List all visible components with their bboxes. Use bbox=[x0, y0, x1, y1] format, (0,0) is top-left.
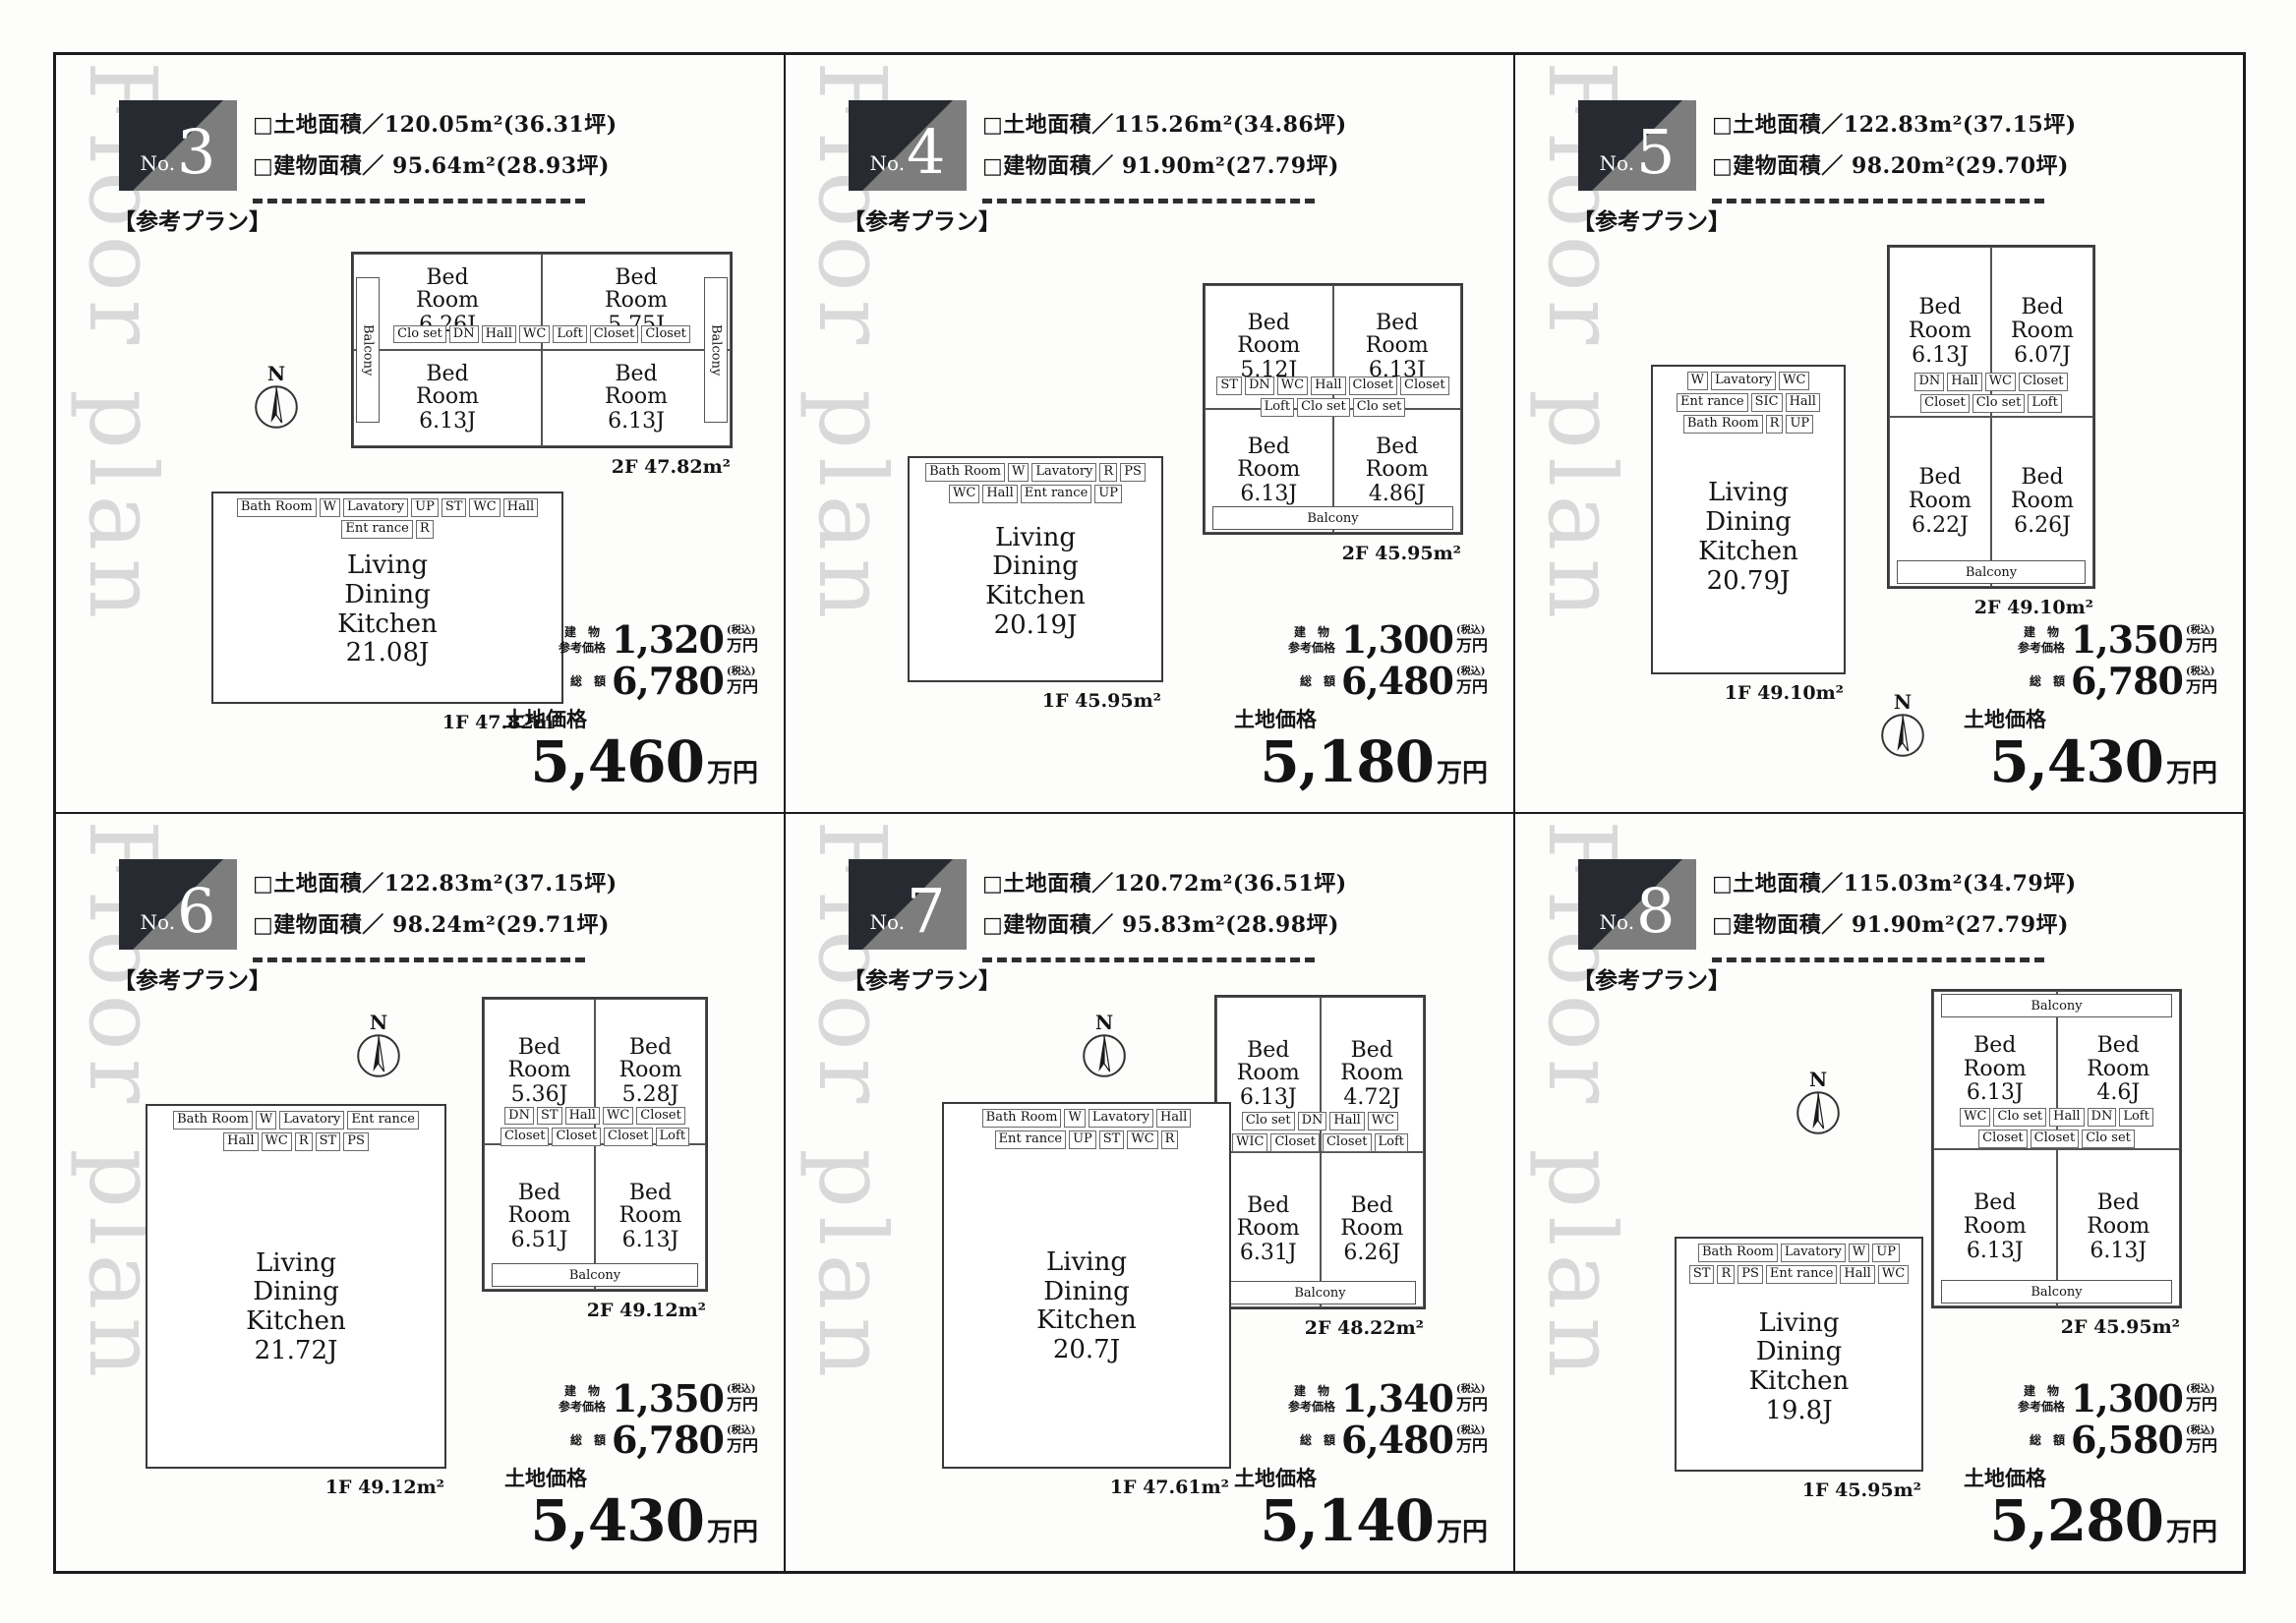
ldk-room: Living Dining Kitchen20.79J bbox=[1645, 479, 1852, 597]
utility-label: Ent rance bbox=[1677, 393, 1748, 412]
utility-label: Loft bbox=[2119, 1108, 2153, 1127]
land-price-row: 5,430 万円 bbox=[493, 1492, 758, 1549]
room-size: 6.22J bbox=[1912, 513, 1969, 538]
land-price-unit: 万円 bbox=[707, 753, 758, 789]
building-price-label: 建 物 参考価格 bbox=[559, 1383, 606, 1415]
utility-label: ST bbox=[1099, 1130, 1125, 1149]
room-size: 4.6J bbox=[2096, 1080, 2140, 1105]
land-price-value: 5,430 bbox=[530, 1492, 704, 1549]
utility-label: Hall bbox=[1947, 373, 1981, 391]
room-name: Bed Room bbox=[1900, 466, 1980, 513]
utility-label: R bbox=[1099, 463, 1117, 482]
utility-label: UP bbox=[1872, 1244, 1900, 1262]
building-price-label: 建 物 参考価格 bbox=[2018, 624, 2065, 656]
dashed-divider bbox=[982, 199, 1315, 203]
utility-label: WC bbox=[1960, 1108, 1990, 1127]
balcony: Balcony bbox=[1224, 1281, 1416, 1304]
land-price-value: 5,140 bbox=[1260, 1492, 1434, 1549]
room-name: Bed Room bbox=[1331, 1039, 1412, 1086]
utility-label: Bath Room bbox=[1683, 415, 1763, 434]
utility-label: Clo set bbox=[2082, 1130, 2135, 1148]
land-price-value: 5,180 bbox=[1260, 733, 1434, 790]
room: Bed Room6.13J bbox=[542, 350, 731, 446]
room-name: Bed Room bbox=[1331, 1194, 1412, 1242]
lot-panel-7: Floor plan No. 7 □土地面積／120.72m²(36.51坪) … bbox=[785, 813, 1514, 1572]
room-size: 6.07J bbox=[2014, 343, 2071, 368]
floor-area-label: 1F 49.12m² bbox=[325, 1477, 444, 1498]
utility-label: PS bbox=[343, 1132, 369, 1151]
building-price-value: 1,340 bbox=[1341, 1380, 1453, 1418]
room-name: Bed Room bbox=[500, 1036, 580, 1083]
utility-labels: Bath RoomLavatoryWUPSTRPSEnt ranceHallWC bbox=[1686, 1244, 1912, 1284]
total-price-value: 6,480 bbox=[1341, 1421, 1453, 1459]
room-size: 6.13J bbox=[622, 1228, 679, 1252]
balcony: Balcony bbox=[492, 1263, 698, 1287]
price-block: 建 物 参考価格 1,300 (税込) 万円 総 額 6,580 (税込) 万円… bbox=[1952, 1380, 2217, 1549]
total-price-suffix: (税込) 万円 bbox=[2186, 1425, 2217, 1455]
utility-labels: STDNWCHallClosetClosetLoftClo setClo set bbox=[1214, 377, 1450, 417]
utility-label: Clo set bbox=[1972, 394, 2026, 413]
badge-no-prefix: No. bbox=[141, 912, 176, 932]
land-area-text: □土地面積／122.83m²(37.15坪) bbox=[253, 863, 618, 904]
utility-label: Bath Room bbox=[925, 463, 1005, 482]
floor-area-label: 1F 45.95m² bbox=[1802, 1479, 1921, 1501]
utility-label: R bbox=[1717, 1265, 1735, 1284]
balcony: Balcony bbox=[1941, 1280, 2172, 1304]
utility-label: WC bbox=[519, 325, 550, 344]
land-area-text: □土地面積／115.26m²(34.86坪) bbox=[982, 104, 1347, 145]
area-info: □土地面積／122.83m²(37.15坪) □建物面積／ 98.20m²(29… bbox=[1712, 104, 2077, 187]
utility-label: ST bbox=[1216, 377, 1242, 395]
utility-label: Bath Room bbox=[237, 498, 317, 517]
utility-label: Lavatory bbox=[1089, 1109, 1153, 1128]
room-name: Bed Room bbox=[596, 266, 677, 314]
building-price-row: 建 物 参考価格 1,300 (税込) 万円 bbox=[1952, 1380, 2217, 1418]
utility-label: DN bbox=[2088, 1108, 2117, 1127]
building-price-value: 1,350 bbox=[612, 1380, 724, 1418]
lot-number-badge: No. 5 bbox=[1578, 100, 1696, 191]
floor-area-label: 2F 48.22m² bbox=[1305, 1317, 1424, 1339]
utility-label: Hall bbox=[503, 498, 538, 517]
room: Bed Room6.13J bbox=[353, 350, 542, 446]
utility-label: Lavatory bbox=[279, 1111, 344, 1130]
building-price-suffix: (税込) 万円 bbox=[1456, 625, 1488, 655]
utility-label: Closet bbox=[1400, 377, 1449, 395]
room-name: Bed Room bbox=[611, 1182, 691, 1229]
total-price-row: 総 額 6,780 (税込) 万円 bbox=[1952, 663, 2217, 700]
utility-label: W bbox=[1687, 372, 1708, 390]
ldk-room: Living Dining Kitchen21.08J bbox=[284, 551, 491, 669]
floor-plan-1f: Living Dining Kitchen21.72JBath RoomWLav… bbox=[146, 1104, 446, 1469]
room-name: Bed Room bbox=[1228, 312, 1309, 359]
room-size: 20.7J bbox=[983, 1337, 1190, 1366]
room-size: 6.51J bbox=[511, 1228, 568, 1252]
floor-plan-sheet: Floor plan No. 3 □土地面積／120.05m²(36.31坪) … bbox=[0, 0, 2296, 1623]
total-price-row: 総 額 6,480 (税込) 万円 bbox=[1222, 1421, 1488, 1459]
utility-labels: Clo setDNHallWCWICClosetClosetLoft bbox=[1224, 1112, 1415, 1152]
reference-plan-label: 【参考プラン】 bbox=[1572, 203, 1731, 236]
building-price-label: 建 物 参考価格 bbox=[1288, 1383, 1335, 1415]
utility-label: Closet bbox=[2019, 373, 2068, 391]
price-unit: 万円 bbox=[727, 1396, 758, 1414]
room-name: Bed Room bbox=[2078, 1191, 2158, 1239]
utility-label: Closet bbox=[2031, 1130, 2080, 1148]
compass-n-label: N bbox=[1875, 692, 1930, 712]
total-price-label: 総 額 bbox=[2030, 673, 2065, 689]
floor-area-label: 2F 49.12m² bbox=[587, 1300, 706, 1321]
building-price-label: 建 物 参考価格 bbox=[559, 624, 606, 656]
land-price-unit: 万円 bbox=[707, 1512, 758, 1548]
balcony: Balcony bbox=[1941, 994, 2172, 1017]
price-block: 建 物 参考価格 1,300 (税込) 万円 総 額 6,480 (税込) 万円… bbox=[1222, 621, 1488, 790]
building-price-suffix: (税込) 万円 bbox=[2186, 1384, 2217, 1414]
compass-n-label: N bbox=[351, 1013, 406, 1032]
room-size: 6.13J bbox=[2090, 1239, 2147, 1263]
price-unit: 万円 bbox=[2186, 1396, 2217, 1414]
total-price-label: 総 額 bbox=[570, 673, 606, 689]
utility-label: Lavatory bbox=[1711, 372, 1776, 390]
badge-number: 4 bbox=[907, 127, 945, 179]
badge-number: 8 bbox=[1636, 886, 1675, 938]
building-price-row: 建 物 参考価格 1,340 (税込) 万円 bbox=[1222, 1380, 1488, 1418]
utility-label: Loft bbox=[656, 1128, 690, 1146]
compass-n-label: N bbox=[249, 364, 304, 383]
utility-label: Clo set bbox=[1993, 1108, 2046, 1127]
utility-label: Hall bbox=[1156, 1109, 1191, 1128]
floor-plan-2f: Bed Room6.26JBed Room5.75JBed Room6.13JB… bbox=[351, 252, 733, 448]
utility-label: Closet bbox=[1270, 1133, 1320, 1152]
lot-panel-5: Floor plan No. 5 □土地面積／122.83m²(37.15坪) … bbox=[1514, 54, 2244, 813]
land-price-unit: 万円 bbox=[1437, 1512, 1488, 1548]
utility-label: WC bbox=[469, 498, 500, 517]
utility-label: DN bbox=[504, 1107, 534, 1126]
land-price-value: 5,430 bbox=[1989, 733, 2163, 790]
total-price-suffix: (税込) 万円 bbox=[2186, 667, 2217, 696]
floor-plan-box: Living Dining Kitchen20.7JBath RoomWLava… bbox=[942, 1102, 1231, 1469]
utility-label: UP bbox=[1069, 1130, 1096, 1149]
room-name: Living Dining Kitchen bbox=[314, 551, 461, 640]
utility-label: ST bbox=[316, 1132, 341, 1151]
room-size: 6.13J bbox=[1967, 1239, 2024, 1263]
floor-plan-2f: Bed Room6.13JBed Room4.6JBed Room6.13JBe… bbox=[1931, 989, 2182, 1308]
utility-label: Hall bbox=[1329, 1112, 1364, 1130]
room-size: 4.86J bbox=[1369, 482, 1426, 506]
room-size: 6.13J bbox=[1240, 1085, 1297, 1110]
land-price-row: 5,140 万円 bbox=[1222, 1492, 1488, 1549]
price-block: 建 物 参考価格 1,320 (税込) 万円 総 額 6,780 (税込) 万円… bbox=[493, 621, 758, 790]
floor-plan-box: Living Dining Kitchen20.19JBath RoomWLav… bbox=[908, 456, 1163, 682]
utility-labels: WLavatoryWCEnt ranceSICHallBath RoomRUP bbox=[1661, 372, 1837, 434]
lot-number-badge: No. 3 bbox=[119, 100, 237, 191]
reference-plan-label: 【参考プラン】 bbox=[843, 203, 1001, 236]
land-price-unit: 万円 bbox=[2166, 753, 2217, 789]
floor-plan-2f: Bed Room5.36JBed Room5.28JBed Room6.51JB… bbox=[482, 997, 708, 1292]
badge-no-prefix: No. bbox=[1600, 912, 1635, 932]
room-size: 6.13J bbox=[608, 409, 665, 434]
dashed-divider bbox=[1712, 957, 2044, 962]
lot-panel-3: Floor plan No. 3 □土地面積／120.05m²(36.31坪) … bbox=[55, 54, 785, 813]
land-price-value: 5,280 bbox=[1989, 1492, 2163, 1549]
dashed-divider bbox=[253, 199, 585, 203]
lot-panel-8: Floor plan No. 8 □土地面積／115.03m²(34.79坪) … bbox=[1514, 813, 2244, 1572]
compass-needle-icon bbox=[253, 383, 300, 431]
building-price-suffix: (税込) 万円 bbox=[1456, 1384, 1488, 1414]
balcony: Balcony bbox=[704, 277, 728, 423]
building-price-suffix: (税込) 万円 bbox=[727, 625, 758, 655]
utility-label: WC bbox=[1878, 1265, 1909, 1284]
floor-area-label: 2F 45.95m² bbox=[1342, 543, 1461, 564]
area-info: □土地面積／115.26m²(34.86坪) □建物面積／ 91.90m²(27… bbox=[982, 104, 1347, 187]
badge-number: 6 bbox=[177, 886, 215, 938]
floor-plan-box: Living Dining Kitchen20.79JWLavatoryWCEn… bbox=[1651, 365, 1846, 674]
room-name: Bed Room bbox=[500, 1182, 580, 1229]
utility-label: R bbox=[295, 1132, 313, 1151]
utility-label: W bbox=[256, 1111, 276, 1130]
price-unit: 万円 bbox=[727, 1437, 758, 1455]
dashed-divider bbox=[1712, 199, 2044, 203]
balcony-label: Balcony bbox=[1307, 511, 1358, 526]
utility-label: W bbox=[320, 498, 340, 517]
price-block: 建 物 参考価格 1,340 (税込) 万円 総 額 6,480 (税込) 万円… bbox=[1222, 1380, 1488, 1549]
compass-needle-icon bbox=[1795, 1089, 1842, 1136]
floor-area-label: 2F 45.95m² bbox=[2061, 1316, 2180, 1338]
reference-plan-label: 【参考プラン】 bbox=[113, 203, 271, 236]
compass-n-label: N bbox=[1077, 1013, 1132, 1032]
balcony-label: Balcony bbox=[1966, 565, 2017, 580]
utility-labels: WCClo setHallDNLoftClosetClosetClo set bbox=[1943, 1108, 2170, 1148]
room-name: Bed Room bbox=[1357, 312, 1438, 359]
utility-label: Lavatory bbox=[1031, 463, 1096, 482]
utility-label: Clo set bbox=[1242, 1112, 1295, 1130]
utility-label: ST bbox=[1689, 1265, 1715, 1284]
land-area-text: □土地面積／120.05m²(36.31坪) bbox=[253, 104, 618, 145]
floor-plan-2f: Bed Room6.13JBed Room6.07JBed Room6.22JB… bbox=[1887, 245, 2095, 589]
utility-label: Closet bbox=[1920, 394, 1970, 413]
room-size: 6.26J bbox=[1343, 1241, 1400, 1265]
building-price-value: 1,350 bbox=[2071, 621, 2183, 659]
balcony-label: Balcony bbox=[2031, 1285, 2082, 1300]
utility-label: Closet bbox=[1978, 1130, 2028, 1148]
balcony: Balcony bbox=[1212, 506, 1453, 530]
badge-no-prefix: No. bbox=[870, 912, 906, 932]
room-size: 6.13J bbox=[1912, 343, 1969, 368]
room-name: Bed Room bbox=[1955, 1191, 2035, 1239]
building-price-value: 1,300 bbox=[2071, 1380, 2183, 1418]
floor-area-label: 2F 47.82m² bbox=[612, 456, 731, 478]
room-name: Bed Room bbox=[1955, 1034, 2035, 1081]
panel-grid: Floor plan No. 3 □土地面積／120.05m²(36.31坪) … bbox=[53, 52, 2246, 1574]
land-price-row: 5,430 万円 bbox=[1952, 733, 2217, 790]
room-size: 6.13J bbox=[1967, 1080, 2024, 1105]
utility-labels: Bath RoomWLavatoryHallEnt ranceUPSTWCR bbox=[956, 1109, 1218, 1149]
room-name: Bed Room bbox=[611, 1036, 691, 1083]
room-size: 4.72J bbox=[1343, 1085, 1400, 1110]
total-price-label: 総 額 bbox=[1300, 1432, 1335, 1448]
floor-plan-1f: Living Dining Kitchen20.19JBath RoomWLav… bbox=[908, 456, 1163, 682]
room-size: 19.8J bbox=[1696, 1397, 1903, 1426]
utility-label: Ent rance bbox=[341, 520, 413, 539]
utility-label: Hall bbox=[1311, 377, 1345, 395]
room-size: 5.36J bbox=[511, 1082, 568, 1107]
lot-panel-6: Floor plan No. 6 □土地面積／122.83m²(37.15坪) … bbox=[55, 813, 785, 1572]
room-name: Bed Room bbox=[1357, 435, 1438, 483]
room-size: 6.31J bbox=[1240, 1241, 1297, 1265]
floor-area-label: 1F 45.95m² bbox=[1042, 690, 1161, 712]
building-price-suffix: (税込) 万円 bbox=[2186, 625, 2217, 655]
building-area-text: □建物面積／ 95.83m²(28.98坪) bbox=[982, 904, 1347, 946]
price-unit: 万円 bbox=[1456, 1396, 1488, 1414]
floor-plan-1f: Living Dining Kitchen19.8JBath RoomLavat… bbox=[1675, 1237, 1923, 1472]
utility-label: Clo set bbox=[393, 325, 446, 344]
utility-label: Loft bbox=[1375, 1133, 1409, 1152]
utility-labels: Bath RoomWLavatoryRPSWCHallEnt ranceUP bbox=[919, 463, 1151, 503]
room-name: Bed Room bbox=[1228, 1194, 1309, 1242]
land-price-row: 5,280 万円 bbox=[1952, 1492, 2217, 1549]
utility-label: WC bbox=[262, 1132, 292, 1151]
ldk-room: Living Dining Kitchen20.7J bbox=[983, 1248, 1190, 1366]
building-price-row: 建 物 参考価格 1,320 (税込) 万円 bbox=[493, 621, 758, 659]
compass-n-label: N bbox=[1791, 1070, 1846, 1089]
balcony-label: Balcony bbox=[2031, 999, 2082, 1014]
total-price-value: 6,780 bbox=[2071, 663, 2183, 700]
room-name: Bed Room bbox=[596, 363, 677, 410]
room-name: Bed Room bbox=[2002, 296, 2083, 343]
utility-label: R bbox=[1766, 415, 1784, 434]
total-price-value: 6,780 bbox=[612, 1421, 724, 1459]
total-price-label: 総 額 bbox=[2030, 1432, 2065, 1448]
utility-label: Closet bbox=[604, 1128, 653, 1146]
utility-label: R bbox=[416, 520, 434, 539]
balcony: Balcony bbox=[1897, 560, 2086, 584]
price-unit: 万円 bbox=[1456, 637, 1488, 655]
ldk-room: Living Dining Kitchen20.19J bbox=[932, 524, 1139, 642]
room-name: Living Dining Kitchen bbox=[1726, 1309, 1873, 1398]
compass-icon: N bbox=[1875, 692, 1930, 763]
floor-plan-box: Bed Room5.36JBed Room5.28JBed Room6.51JB… bbox=[482, 997, 708, 1292]
balcony: Balcony bbox=[356, 277, 380, 423]
room-grid: Bed Room6.26JBed Room5.75JBed Room6.13JB… bbox=[353, 254, 731, 446]
floor-plan-2f: Bed Room5.12JBed Room6.13JBed Room6.13JB… bbox=[1203, 283, 1463, 535]
land-price-unit: 万円 bbox=[2166, 1512, 2217, 1548]
land-price-unit: 万円 bbox=[1437, 753, 1488, 789]
compass-needle-icon bbox=[1879, 712, 1926, 759]
utility-label: Ent rance bbox=[1021, 485, 1092, 503]
utility-label: Ent rance bbox=[995, 1130, 1067, 1149]
room-name: Bed Room bbox=[2078, 1034, 2158, 1081]
room-name: Bed Room bbox=[1228, 435, 1309, 483]
lot-panel-4: Floor plan No. 4 □土地面積／115.26m²(34.86坪) … bbox=[785, 54, 1514, 813]
utility-label: Hall bbox=[1840, 1265, 1874, 1284]
floor-plan-box: Living Dining Kitchen19.8JBath RoomLavat… bbox=[1675, 1237, 1923, 1472]
utility-label: Clo set bbox=[1353, 398, 1406, 417]
room-size: 6.26J bbox=[2014, 513, 2071, 538]
total-price-label: 総 額 bbox=[1300, 673, 1335, 689]
room-name: Bed Room bbox=[1900, 296, 1980, 343]
badge-no-prefix: No. bbox=[141, 153, 176, 173]
room-name: Bed Room bbox=[407, 266, 488, 314]
utility-label: Hall bbox=[482, 325, 516, 344]
utility-label: WC bbox=[1985, 373, 2016, 391]
price-unit: 万円 bbox=[727, 637, 758, 655]
utility-label: DN bbox=[1245, 377, 1274, 395]
room-name: Living Dining Kitchen bbox=[962, 524, 1109, 612]
utility-label: R bbox=[1161, 1130, 1179, 1149]
utility-label: UP bbox=[1094, 485, 1122, 503]
floor-area-label: 2F 49.10m² bbox=[1974, 597, 2093, 618]
building-area-text: □建物面積／ 95.64m²(28.93坪) bbox=[253, 145, 618, 187]
building-area-text: □建物面積／ 91.90m²(27.79坪) bbox=[982, 145, 1347, 187]
lot-number-badge: No. 6 bbox=[119, 859, 237, 950]
building-price-label: 建 物 参考価格 bbox=[1288, 624, 1335, 656]
compass-needle-icon bbox=[355, 1032, 402, 1079]
badge-no-prefix: No. bbox=[1600, 153, 1635, 173]
floor-plan-box: Bed Room6.13JBed Room4.72JBed Room6.31JB… bbox=[1214, 995, 1426, 1309]
price-unit: 万円 bbox=[727, 678, 758, 696]
room-name: Living Dining Kitchen bbox=[1675, 479, 1822, 567]
land-price-value: 5,460 bbox=[530, 733, 704, 790]
utility-label: Ent rance bbox=[1766, 1265, 1838, 1284]
dashed-divider bbox=[982, 957, 1315, 962]
utility-labels: Bath RoomWLavatoryEnt ranceHallWCRSTPS bbox=[159, 1111, 433, 1151]
total-price-suffix: (税込) 万円 bbox=[727, 667, 758, 696]
utility-label: Closet bbox=[552, 1128, 601, 1146]
utility-label: Closet bbox=[590, 325, 639, 344]
land-area-text: □土地面積／115.03m²(34.79坪) bbox=[1712, 863, 2077, 904]
room-name: Living Dining Kitchen bbox=[222, 1249, 370, 1338]
utility-label: SIC bbox=[1751, 393, 1783, 412]
badge-number: 5 bbox=[1636, 127, 1675, 179]
room-grid: Bed Room6.13JBed Room4.72JBed Room6.31JB… bbox=[1216, 997, 1424, 1307]
dashed-divider bbox=[253, 957, 585, 962]
utility-label: Closet bbox=[636, 1107, 685, 1126]
reference-plan-label: 【参考プラン】 bbox=[113, 961, 271, 995]
utility-label: WC bbox=[1127, 1130, 1157, 1149]
badge-number: 3 bbox=[177, 127, 215, 179]
total-price-row: 総 額 6,780 (税込) 万円 bbox=[493, 1421, 758, 1459]
utility-label: Hall bbox=[1786, 393, 1820, 412]
land-area-text: □土地面積／122.83m²(37.15坪) bbox=[1712, 104, 2077, 145]
price-unit: 万円 bbox=[2186, 637, 2217, 655]
utility-label: UP bbox=[1786, 415, 1813, 434]
ldk-room: Living Dining Kitchen21.72J bbox=[193, 1249, 399, 1367]
utility-labels: DNHallWCClosetClosetClo setLoft bbox=[1897, 373, 2085, 413]
compass-icon: N bbox=[1791, 1070, 1846, 1140]
total-price-suffix: (税込) 万円 bbox=[1456, 667, 1488, 696]
room-size: 21.72J bbox=[193, 1337, 399, 1366]
building-area-text: □建物面積／ 91.90m²(27.79坪) bbox=[1712, 904, 2077, 946]
lot-number-badge: No. 4 bbox=[849, 100, 967, 191]
building-price-row: 建 物 参考価格 1,350 (税込) 万円 bbox=[1952, 621, 2217, 659]
utility-label: Hall bbox=[223, 1132, 258, 1151]
utility-label: Clo set bbox=[1297, 398, 1350, 417]
floor-plan-box: Bed Room5.12JBed Room6.13JBed Room6.13JB… bbox=[1203, 283, 1463, 535]
price-block: 建 物 参考価格 1,350 (税込) 万円 総 額 6,780 (税込) 万円… bbox=[1952, 621, 2217, 790]
price-unit: 万円 bbox=[1456, 1437, 1488, 1455]
lot-number-badge: No. 8 bbox=[1578, 859, 1696, 950]
total-price-suffix: (税込) 万円 bbox=[1456, 1425, 1488, 1455]
reference-plan-label: 【参考プラン】 bbox=[843, 961, 1001, 995]
total-price-row: 総 額 6,580 (税込) 万円 bbox=[1952, 1421, 2217, 1459]
floor-plan-1f: Living Dining Kitchen20.79JWLavatoryWCEn… bbox=[1651, 365, 1846, 674]
land-price-row: 5,180 万円 bbox=[1222, 733, 1488, 790]
utility-label: W bbox=[1008, 463, 1029, 482]
utility-label: ST bbox=[537, 1107, 562, 1126]
compass-icon: N bbox=[249, 364, 304, 435]
floor-plan-1f: Living Dining Kitchen20.7JBath RoomWLava… bbox=[942, 1102, 1231, 1469]
utility-labels: Clo setDNHallWCLoftClosetCloset bbox=[368, 325, 715, 344]
utility-label: Ent rance bbox=[347, 1111, 419, 1130]
area-info: □土地面積／120.05m²(36.31坪) □建物面積／ 95.64m²(28… bbox=[253, 104, 618, 187]
